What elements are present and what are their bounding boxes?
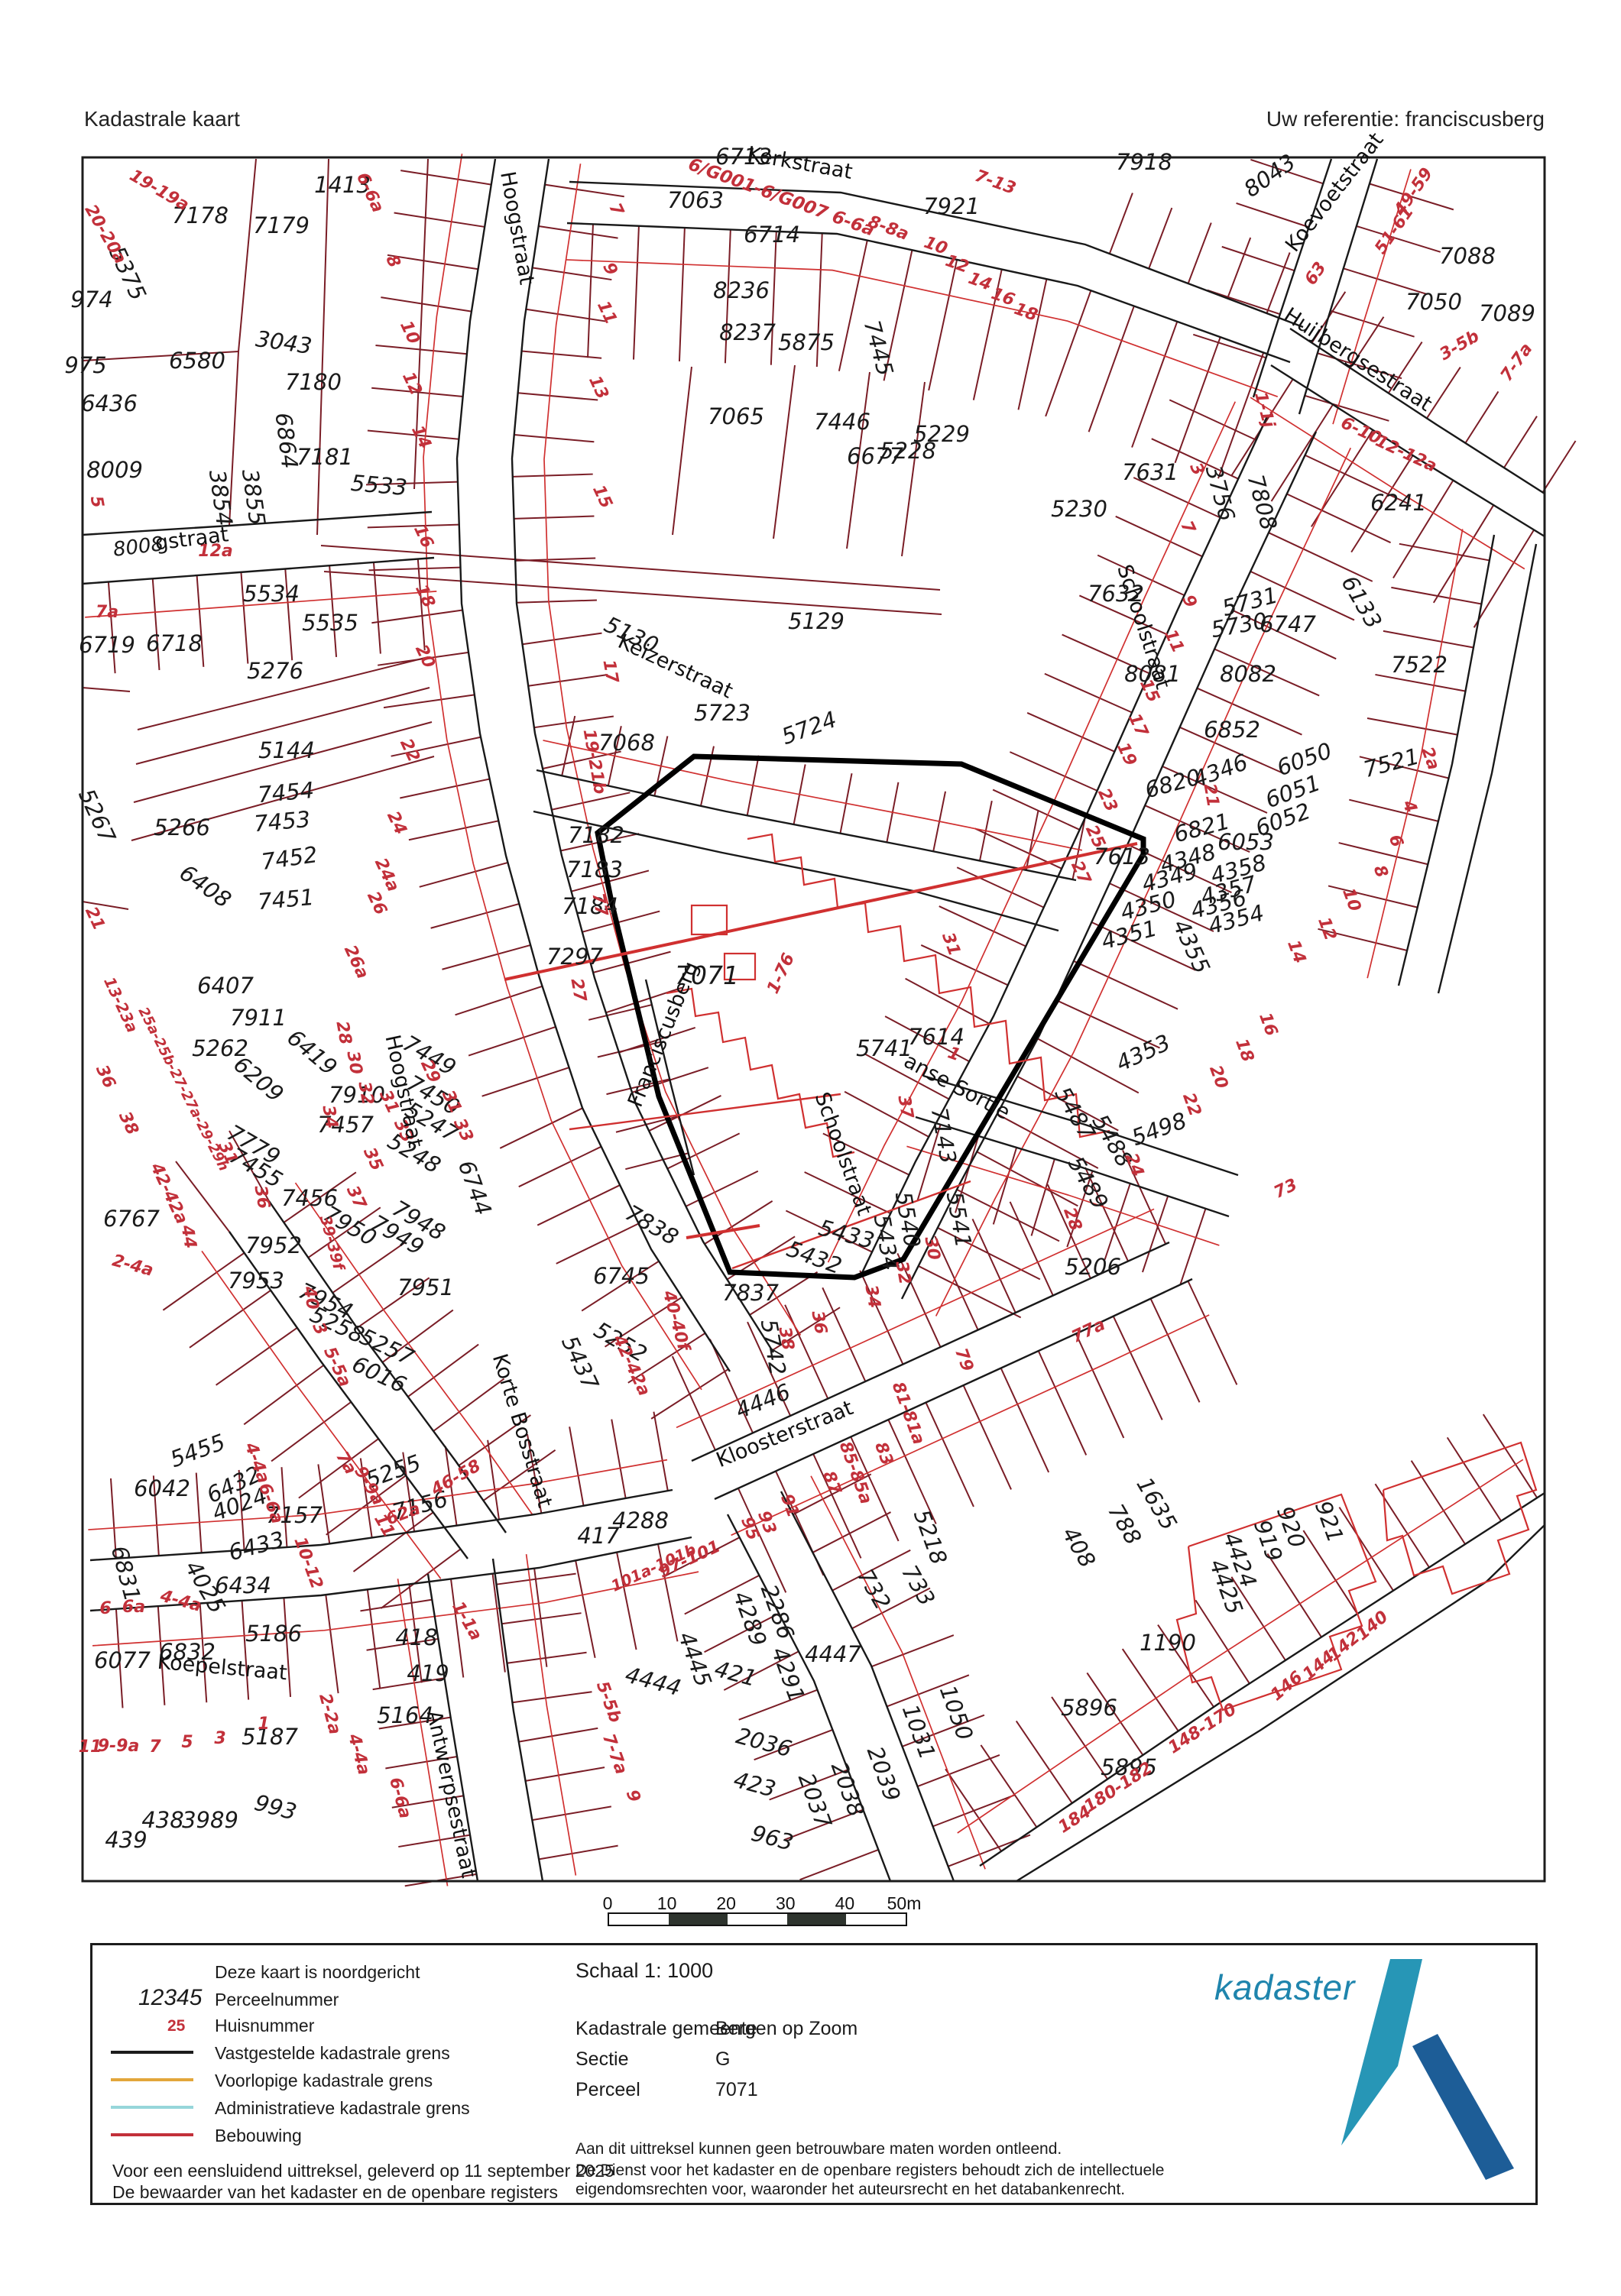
parcel-number: 6434 [215, 1572, 271, 1598]
parcel-number: 975 [64, 352, 106, 378]
parcel-number: 7063 [667, 187, 724, 213]
parcel-number: 6241 [1370, 490, 1427, 516]
parcel-number: 788 [1103, 1500, 1146, 1550]
parcel-number: 438 [141, 1807, 183, 1833]
street-name: Koevoetstraat [1281, 128, 1389, 257]
legend-parcel-label: Perceelnummer [215, 1990, 339, 2010]
house-number: 34 [861, 1284, 883, 1310]
parcel-number: 418 [395, 1624, 437, 1650]
parcel-number: 5266 [154, 814, 210, 840]
parcel-number: 6419 [282, 1025, 342, 1080]
parcel-number: 2039 [862, 1743, 906, 1805]
kadaster-logo-mark [1331, 1953, 1529, 2190]
parcel-number: 6408 [175, 860, 236, 913]
parcel-number: 5267 [73, 785, 121, 847]
legend-line-label: Voorlopige kadastrale grens [215, 2071, 433, 2091]
scalebar-tick: 0 [603, 1893, 613, 1914]
house-number: 16 [989, 284, 1017, 310]
house-number: 24a [371, 855, 403, 895]
parcel-number: 5896 [1061, 1695, 1117, 1721]
legend-line-swatch [111, 2051, 193, 2054]
parcel-number: 8236 [713, 277, 770, 303]
house-number: 8 [1370, 863, 1392, 880]
parcel-number: 5487 [1049, 1083, 1101, 1145]
house-number: 10 [396, 318, 423, 347]
parcel-number: 419 [407, 1660, 449, 1686]
scalebar-tick: 40 [835, 1893, 855, 1914]
info-label: Sectie [575, 2048, 628, 2071]
parcel-number: 5533 [350, 470, 408, 500]
house-number: 32 [354, 1080, 377, 1107]
parcel-number: 4446 [732, 1378, 794, 1423]
parcel-number: 974 [70, 287, 112, 313]
house-number: 10 [922, 233, 950, 259]
street-name: Hoogstraat [495, 170, 539, 287]
parcel-number: 8082 [1220, 661, 1276, 687]
parcel-number: 7951 [397, 1274, 454, 1300]
house-number: 20-20a [80, 202, 129, 267]
house-number: 18 [411, 581, 439, 610]
house-number: 38 [774, 1326, 797, 1352]
house-number: 15 [588, 482, 616, 511]
parcel-number: 5129 [788, 608, 845, 634]
house-number: 91 [776, 1491, 802, 1520]
house-number: 18 [1012, 300, 1040, 325]
parcel-number: 6407 [197, 973, 254, 999]
house-number: 17 [1124, 711, 1152, 740]
house-number: 40 [299, 1284, 322, 1311]
house-number: 12 [943, 251, 971, 277]
house-number: 17 [598, 659, 621, 685]
parcel-number: 6767 [103, 1206, 160, 1232]
house-number: 18 [1231, 1036, 1257, 1064]
house-number: 13-23a [100, 974, 141, 1035]
parcel-number: 7952 [245, 1232, 302, 1258]
map-scale: Schaal 1: 1000 [575, 1959, 713, 1983]
legend-line-swatch [111, 2133, 193, 2136]
house-number: 3 [214, 1729, 225, 1748]
house-number: 73 [1271, 1175, 1300, 1203]
parcel-number: 4447 [805, 1641, 861, 1667]
parcel-number: 1190 [1140, 1630, 1196, 1656]
parcel-number: 5541 [942, 1190, 977, 1250]
house-number: 26a [340, 942, 372, 982]
house-number: 6 [99, 1599, 111, 1618]
house-number: 36 [92, 1062, 119, 1091]
house-number: 146 [1267, 1668, 1306, 1705]
house-number: 8 [381, 252, 404, 270]
parcel-number: 7089 [1479, 300, 1535, 326]
parcel-number: 7445 [859, 317, 899, 378]
parcel-number: 6077 [94, 1647, 151, 1673]
house-number: 1 [258, 1715, 269, 1734]
house-number: 79 [951, 1346, 977, 1374]
house-number: 9 [622, 1787, 644, 1805]
house-number: 38 [115, 1109, 142, 1138]
disclaimer-3: eigendomsrechten voor, waaronder het aut… [575, 2181, 1125, 2199]
street-name: Franciscusberg [624, 958, 704, 1110]
parcel-number: 5498 [1128, 1107, 1190, 1151]
house-number: 77 [588, 892, 611, 918]
scalebar-tick: 10 [657, 1893, 677, 1914]
parcel-number: 3989 [182, 1807, 238, 1833]
parcel-number: 5218 [909, 1506, 952, 1568]
house-number: 7-7a [1497, 340, 1537, 385]
parcel-number: 6747 [1260, 611, 1316, 637]
street-name: Antwerpsestraat [422, 1708, 481, 1880]
parcel-number: 4444 [623, 1661, 684, 1701]
parcel-number: 8009 [86, 457, 143, 483]
parcel-number: 921 [1310, 1498, 1349, 1546]
parcel-number: 7182 [568, 822, 624, 848]
legend-house-label: Huisnummer [215, 2016, 314, 2036]
house-number: 36 [807, 1310, 830, 1336]
house-number: 30 [920, 1235, 943, 1262]
parcel-number: 7921 [923, 193, 980, 219]
parcel-number: 7181 [297, 444, 353, 470]
parcel-number: 6433 [225, 1526, 287, 1566]
house-number: 14 [1283, 938, 1309, 966]
house-number: 9-9a [98, 1737, 140, 1756]
delivery-line-1: Voor een eensluidend uittreksel, gelever… [112, 2161, 614, 2181]
parcel-number: 6852 [1204, 717, 1260, 743]
parcel-number: 6053 [1217, 829, 1274, 855]
legend-house-sample: 25 [167, 2017, 185, 2035]
parcel-number: 7088 [1439, 243, 1496, 269]
parcel-number: 7838 [621, 1200, 683, 1250]
house-number: 9 [1178, 592, 1200, 610]
house-number: 4-4a [344, 1731, 374, 1777]
parcel-number: 993 [251, 1789, 299, 1825]
parcel-number: 6831 [106, 1543, 146, 1604]
scalebar-tick: 30 [776, 1893, 796, 1914]
parcel-number: 7911 [230, 1005, 287, 1031]
house-number: 7-7a [598, 1731, 631, 1777]
house-number: 6a [122, 1598, 145, 1617]
house-number: 11 [593, 298, 621, 327]
parcel-number: 6714 [744, 222, 800, 248]
house-number: 12-12a [1373, 432, 1440, 477]
parcel-number: 7613 [1094, 844, 1150, 870]
parcel-number: 7297 [546, 944, 603, 970]
parcel-number: 5535 [302, 610, 358, 636]
house-number: 13 [585, 373, 612, 402]
footer-box: Deze kaart is noordgericht 12345 Perceel… [90, 1943, 1538, 2205]
parcel-number: 7521 [1360, 743, 1422, 782]
parcel-number: 5229 [913, 421, 970, 447]
house-number: 81-81a [888, 1379, 929, 1447]
parcel-number: 1050 [935, 1682, 978, 1744]
legend-line-label: Bebouwing [215, 2126, 302, 2146]
house-number: 6 [1385, 832, 1407, 850]
house-number: 37 [893, 1094, 916, 1121]
parcel-number: 7953 [228, 1268, 284, 1294]
parcel-number: 7808 [1243, 471, 1282, 533]
parcel-number: 963 [748, 1820, 796, 1856]
house-number: 14 [407, 423, 435, 452]
house-number: 2a [1417, 744, 1443, 772]
parcel-number: 7522 [1391, 652, 1448, 678]
legend-line-label: Administratieve kadastrale grens [215, 2098, 470, 2119]
parcel-number: 6719 [79, 632, 135, 658]
parcel-number: 7446 [814, 409, 870, 435]
house-number: 35 [359, 1145, 387, 1174]
parcel-number: 7454 [257, 777, 315, 808]
house-number: 5-5b [592, 1679, 624, 1725]
house-number: 44 [177, 1223, 199, 1250]
house-number: 21 [1199, 782, 1222, 809]
parcel-number: 7918 [1116, 149, 1172, 175]
parcel-number: 5875 [778, 329, 835, 355]
house-number: 2-2a [315, 1692, 344, 1737]
parcel-number: 5230 [1051, 496, 1107, 522]
parcel-number: 5723 [694, 700, 751, 726]
parcel-number: 3855 [237, 468, 271, 527]
house-number: 21 [81, 904, 109, 933]
parcel-number: 7179 [253, 212, 310, 238]
parcel-number: 6133 [1336, 572, 1386, 633]
house-number: 2-4a [110, 1252, 155, 1281]
house-number: 5 [86, 494, 107, 509]
parcel-number: 421 [712, 1656, 759, 1692]
house-number: 20 [1205, 1063, 1231, 1091]
house-number: 30 [342, 1050, 365, 1077]
parcel-number: 423 [731, 1767, 778, 1802]
parcel-number: 4291 [767, 1643, 810, 1705]
parcel-number: 6209 [229, 1051, 288, 1107]
parcel-number: 6745 [593, 1263, 650, 1289]
legend-line-swatch [111, 2078, 193, 2081]
parcel-number: 5276 [247, 658, 303, 684]
house-number: 1-1a [448, 1598, 485, 1644]
scalebar-tick: 20 [716, 1893, 736, 1914]
parcel-number: 7837 [722, 1280, 779, 1306]
parcel-number: 6436 [81, 390, 138, 416]
delivery-line-2: De bewaarder van het kadaster en de open… [112, 2182, 558, 2203]
house-number: 85-85a [835, 1439, 876, 1507]
street-name: Keizerstraat [614, 630, 737, 703]
house-number: 9 [598, 260, 621, 278]
parcel-number: 7065 [708, 403, 764, 429]
info-value: Bergen op Zoom [715, 2018, 858, 2040]
parcel-number: 7453 [253, 806, 311, 837]
street-name: Koepelstraat [157, 1650, 288, 1686]
parcel-number: 6820 [1142, 763, 1203, 803]
street-name: Korte Bosstraat [488, 1351, 557, 1510]
disclaimer-1: Aan dit uittreksel kunnen geen betrouwba… [575, 2140, 1062, 2158]
parcel-number: 1031 [897, 1701, 941, 1763]
house-number: 4 [1398, 797, 1420, 815]
parcel-number: 7183 [566, 857, 623, 882]
house-number: 3-5b [1436, 327, 1483, 364]
house-number: 12 [1314, 915, 1340, 943]
info-label: Perceel [575, 2079, 640, 2101]
parcel-number: 7068 [598, 730, 655, 756]
parcel-number: 5206 [1065, 1254, 1121, 1280]
parcel-number: 439 [105, 1827, 147, 1853]
house-number: 14 [966, 269, 994, 295]
legend-line-swatch [111, 2106, 193, 2109]
house-number: 6-6a [385, 1776, 414, 1821]
house-number: 7 [149, 1737, 161, 1757]
parcel-number: 5455 [167, 1429, 229, 1472]
house-number: 63 [1302, 259, 1331, 289]
parcel-number: 7180 [285, 369, 342, 395]
parcel-number: 5534 [243, 581, 300, 607]
parcel-number: 5144 [258, 737, 315, 763]
info-value: 7071 [715, 2079, 758, 2101]
house-number: 40-40f [659, 1288, 694, 1355]
house-number: 5 [181, 1733, 193, 1752]
house-number: 28 [1059, 1205, 1085, 1233]
parcel-number: 4353 [1112, 1029, 1174, 1077]
legend-parcel-sample: 12345 [138, 1985, 202, 2011]
scale-bar [608, 1912, 907, 1926]
parcel-number: 6718 [146, 630, 203, 656]
street-name: Kerkstraat [745, 142, 854, 184]
parcel-number: 6580 [169, 348, 225, 374]
parcel-number: 5187 [242, 1724, 298, 1750]
parcel-number: 4288 [612, 1507, 669, 1533]
house-number: 10-12 [290, 1534, 326, 1592]
parcel-number: 6744 [453, 1157, 497, 1219]
parcel-number: 7452 [260, 841, 319, 875]
house-number: 77a [1068, 1315, 1108, 1347]
house-number: 28 [332, 1020, 355, 1047]
house-number: 16 [1255, 1010, 1281, 1038]
house-number: 27 [566, 977, 589, 1004]
parcel-number: 732 [852, 1565, 896, 1614]
disclaimer-2: De Dienst voor het kadaster en de openba… [575, 2162, 1164, 2180]
parcel-number: 8237 [719, 319, 776, 345]
scalebar-tick: 50m [887, 1893, 922, 1914]
house-number: 24 [383, 808, 410, 837]
parcel-number: 7631 [1122, 459, 1178, 485]
house-number: 8-8a [865, 212, 911, 244]
house-number: 27 [1067, 858, 1094, 888]
north-note: Deze kaart is noordgericht [215, 1962, 420, 1983]
parcel-number: 408 [1057, 1523, 1101, 1572]
parcel-number: 5741 [856, 1035, 913, 1061]
parcel-number: 6042 [134, 1475, 190, 1501]
legend-line-label: Vastgestelde kadastrale grens [215, 2043, 450, 2064]
house-number: 83 [870, 1439, 896, 1468]
house-number: 19-19a [126, 166, 192, 215]
house-number: 7 [605, 200, 627, 219]
house-number: 32 [891, 1260, 914, 1287]
info-value: G [715, 2048, 730, 2071]
parcel-number: 7050 [1405, 289, 1462, 315]
house-number: 46-58 [427, 1456, 484, 1500]
house-number: 34 [318, 1104, 341, 1131]
house-number: 36 [250, 1184, 273, 1211]
parcel-number: 7451 [257, 884, 315, 915]
parcel-number: 5489 [1062, 1152, 1113, 1214]
house-number: 1-76 [763, 950, 799, 996]
parcel-number: 5186 [245, 1621, 302, 1647]
parcel-number: 5724 [778, 706, 840, 750]
parcel-number: 3043 [254, 325, 313, 359]
house-number: 7a [96, 603, 118, 622]
house-number: 12 [398, 369, 426, 398]
